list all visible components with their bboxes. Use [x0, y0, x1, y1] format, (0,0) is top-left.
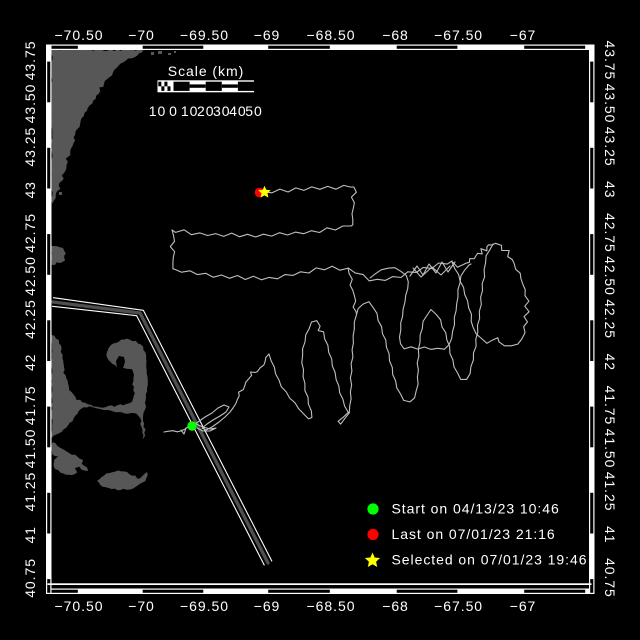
svg-text:41.50: 41.50 — [22, 429, 38, 469]
svg-text:41: 41 — [602, 526, 618, 543]
svg-text:41.25: 41.25 — [602, 472, 618, 512]
svg-text:10: 10 — [181, 103, 198, 119]
svg-text:30: 30 — [213, 103, 230, 119]
svg-text:40.75: 40.75 — [22, 558, 38, 598]
svg-text:42.50: 42.50 — [602, 256, 618, 296]
svg-text:−68: −68 — [382, 27, 409, 43]
svg-text:Start on 04/13/23 10:46: Start on 04/13/23 10:46 — [392, 501, 560, 517]
svg-text:41.75: 41.75 — [22, 386, 38, 426]
svg-text:42.25: 42.25 — [22, 299, 38, 339]
svg-text:20: 20 — [197, 103, 214, 119]
svg-text:−67: −67 — [510, 27, 537, 43]
svg-text:Scale (km): Scale (km) — [168, 63, 244, 79]
svg-text:43.50: 43.50 — [602, 84, 618, 124]
svg-text:43: 43 — [22, 181, 38, 198]
svg-text:−69: −69 — [254, 598, 281, 614]
svg-text:−70.50: −70.50 — [55, 598, 104, 614]
svg-text:−69: −69 — [254, 27, 281, 43]
svg-text:0: 0 — [169, 103, 178, 119]
svg-text:43.75: 43.75 — [602, 41, 618, 81]
svg-text:Last on 07/01/23 21:16: Last on 07/01/23 21:16 — [392, 526, 556, 542]
svg-text:−70: −70 — [128, 27, 155, 43]
svg-text:42: 42 — [22, 354, 38, 371]
svg-text:41.25: 41.25 — [22, 472, 38, 512]
svg-text:41.75: 41.75 — [602, 386, 618, 426]
svg-text:10: 10 — [149, 103, 166, 119]
svg-text:Selected on 07/01/23 19:46: Selected on 07/01/23 19:46 — [392, 552, 588, 568]
svg-text:42.75: 42.75 — [22, 213, 38, 253]
svg-text:−68.50: −68.50 — [307, 598, 356, 614]
svg-text:−67: −67 — [510, 598, 537, 614]
svg-text:43.25: 43.25 — [22, 127, 38, 167]
svg-text:40.75: 40.75 — [602, 558, 618, 598]
svg-text:−70: −70 — [128, 598, 155, 614]
svg-text:43.50: 43.50 — [22, 84, 38, 124]
svg-text:−67.50: −67.50 — [434, 598, 483, 614]
svg-text:−68.50: −68.50 — [307, 27, 356, 43]
svg-text:42.75: 42.75 — [602, 213, 618, 253]
svg-text:42: 42 — [602, 354, 618, 371]
svg-text:40: 40 — [229, 103, 246, 119]
svg-text:−67.50: −67.50 — [434, 27, 483, 43]
svg-text:−70.50: −70.50 — [55, 27, 104, 43]
svg-text:41.50: 41.50 — [602, 429, 618, 469]
svg-text:43: 43 — [602, 181, 618, 198]
svg-text:−68: −68 — [382, 598, 409, 614]
svg-text:42.50: 42.50 — [22, 256, 38, 296]
svg-text:−69.50: −69.50 — [180, 598, 229, 614]
svg-text:42.25: 42.25 — [602, 299, 618, 339]
svg-text:50: 50 — [245, 103, 262, 119]
svg-text:41: 41 — [22, 526, 38, 543]
svg-text:43.75: 43.75 — [22, 41, 38, 81]
svg-text:43.25: 43.25 — [602, 127, 618, 167]
svg-text:−69.50: −69.50 — [180, 27, 229, 43]
